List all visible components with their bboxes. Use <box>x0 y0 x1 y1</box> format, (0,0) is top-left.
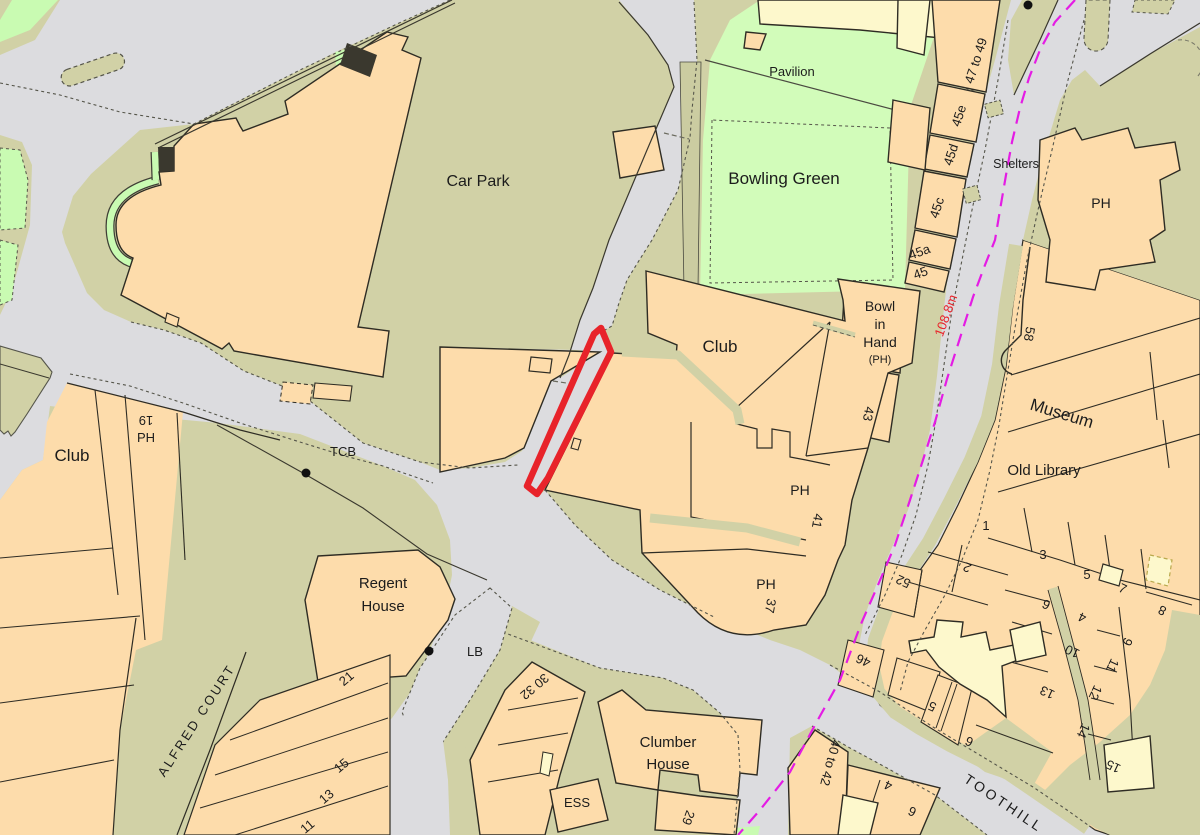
svg-text:Car Park: Car Park <box>446 173 510 190</box>
svg-text:Regent: Regent <box>359 575 408 592</box>
svg-text:5: 5 <box>1083 567 1090 582</box>
svg-text:Bowl: Bowl <box>865 298 895 314</box>
svg-text:(PH): (PH) <box>869 354 892 366</box>
svg-text:19: 19 <box>139 413 153 428</box>
svg-text:Shelters: Shelters <box>993 157 1039 171</box>
svg-text:1: 1 <box>982 518 989 533</box>
svg-text:PH: PH <box>1091 195 1110 211</box>
svg-text:Pavilion: Pavilion <box>769 64 815 79</box>
svg-text:Old Library: Old Library <box>1007 462 1081 479</box>
svg-text:House: House <box>361 598 404 615</box>
svg-text:PH: PH <box>137 430 155 445</box>
svg-text:PH: PH <box>756 576 775 592</box>
svg-text:TCB: TCB <box>330 444 356 459</box>
svg-text:Hand: Hand <box>863 334 896 350</box>
svg-text:37: 37 <box>762 597 779 614</box>
svg-text:Bowling Green: Bowling Green <box>728 169 840 188</box>
svg-text:Clumber: Clumber <box>640 734 697 751</box>
svg-text:Club: Club <box>703 337 738 356</box>
svg-text:PH: PH <box>790 482 809 498</box>
svg-text:43: 43 <box>860 405 877 422</box>
svg-text:ESS: ESS <box>564 795 590 810</box>
svg-text:41: 41 <box>809 512 826 529</box>
svg-text:3: 3 <box>1039 547 1046 562</box>
svg-text:LB: LB <box>467 644 483 659</box>
svg-text:in: in <box>875 316 886 332</box>
svg-text:58: 58 <box>1021 326 1038 343</box>
svg-text:House: House <box>646 756 689 773</box>
svg-text:Club: Club <box>55 446 90 465</box>
